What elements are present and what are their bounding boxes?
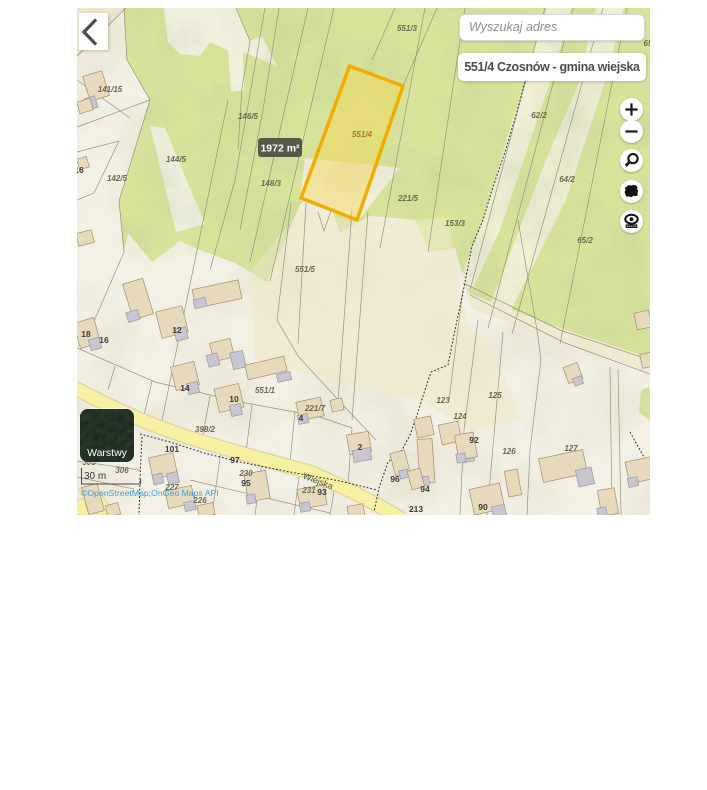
svg-text:221/7: 221/7 — [304, 404, 326, 413]
svg-text:14: 14 — [180, 383, 190, 393]
svg-text:62/2: 62/2 — [531, 111, 547, 120]
svg-text:65: 65 — [644, 39, 650, 48]
svg-text:230: 230 — [238, 469, 253, 478]
svg-text:144/5: 144/5 — [166, 155, 187, 164]
svg-text:124: 124 — [453, 412, 467, 421]
svg-text:64/2: 64/2 — [559, 175, 575, 184]
svg-text:125: 125 — [488, 391, 502, 400]
svg-text:551/3: 551/3 — [397, 24, 418, 33]
svg-text:10: 10 — [229, 394, 239, 404]
svg-text:142/5: 142/5 — [107, 174, 128, 183]
svg-text:127: 127 — [564, 444, 578, 453]
svg-text:148/3: 148/3 — [261, 179, 282, 188]
svg-text:551/4: 551/4 — [352, 130, 373, 139]
svg-text:4: 4 — [299, 413, 304, 423]
svg-text:16: 16 — [77, 165, 84, 175]
svg-text:551/1: 551/1 — [255, 386, 276, 395]
svg-text:146/5: 146/5 — [238, 112, 259, 121]
svg-text:92: 92 — [469, 435, 479, 445]
svg-text:213: 213 — [409, 504, 423, 514]
svg-text:123: 123 — [436, 396, 450, 405]
svg-text:398/2: 398/2 — [195, 425, 216, 434]
svg-text:126: 126 — [502, 447, 516, 456]
svg-text:221/5: 221/5 — [397, 194, 419, 203]
svg-text:18: 18 — [81, 329, 91, 339]
svg-text:97: 97 — [230, 455, 240, 465]
svg-text:153/3: 153/3 — [445, 219, 466, 228]
svg-text:90: 90 — [478, 502, 488, 512]
svg-text:94: 94 — [420, 484, 430, 494]
svg-text:12: 12 — [172, 325, 182, 335]
svg-text:141/15: 141/15 — [98, 85, 123, 94]
svg-text:16: 16 — [99, 335, 109, 345]
svg-text:2: 2 — [358, 442, 363, 452]
svg-text:65/2: 65/2 — [577, 236, 593, 245]
svg-text:101: 101 — [165, 444, 179, 454]
svg-text:96: 96 — [390, 474, 400, 484]
svg-text:1972 m²: 1972 m² — [260, 143, 300, 155]
svg-text:551/5: 551/5 — [295, 265, 316, 274]
svg-text:231: 231 — [301, 486, 316, 495]
svg-text:95: 95 — [241, 478, 251, 488]
